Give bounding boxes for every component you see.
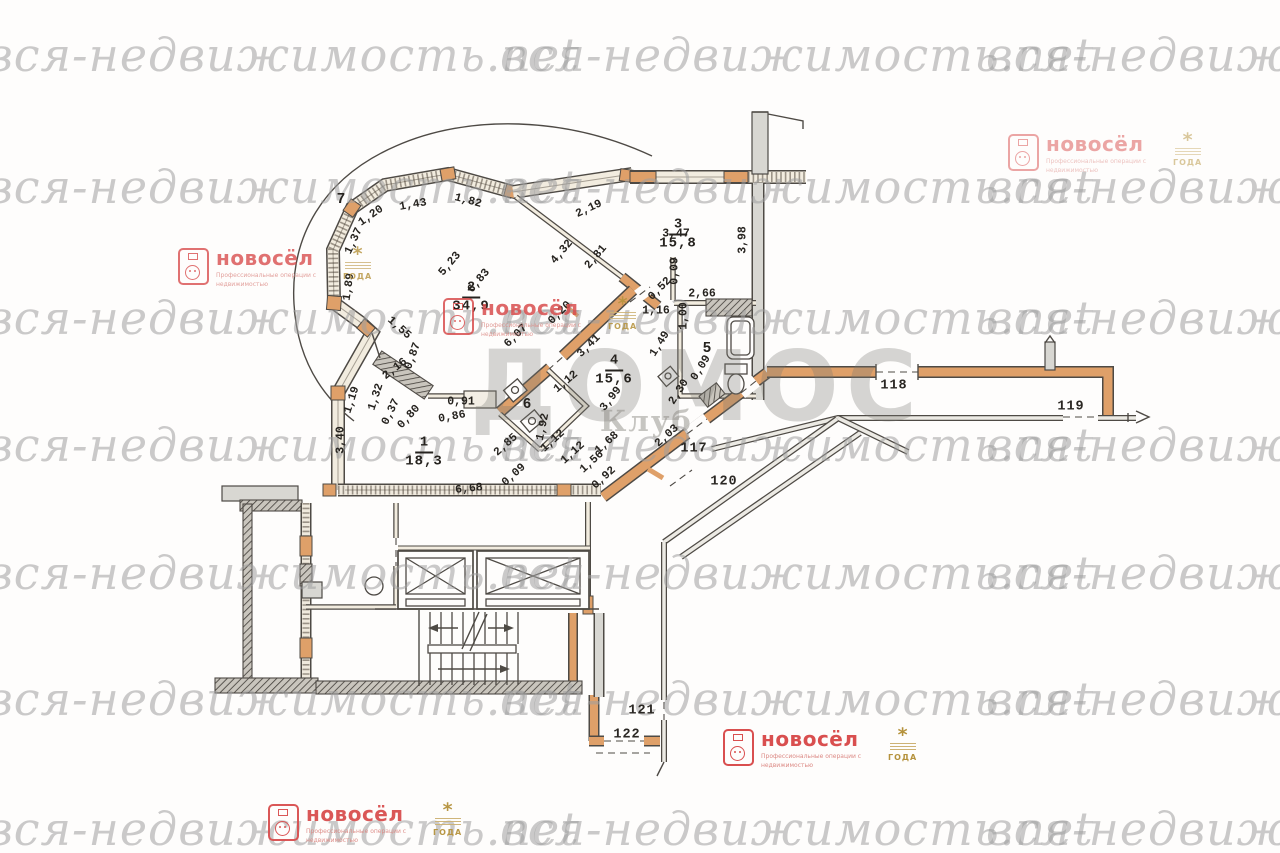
watermark-text: вся-недвижимость.net xyxy=(986,418,1280,472)
award-text: ГОДА xyxy=(1173,158,1202,167)
novosel-logo: новосёлПрофессиональные операции с недви… xyxy=(723,729,923,770)
award-star-icon: * xyxy=(618,298,628,310)
brand-subtitle: Профессиональные операции с недвижимость… xyxy=(306,827,426,845)
brand-subtitle: Профессиональные операции с недвижимость… xyxy=(481,321,601,339)
room-number: 7 xyxy=(337,192,346,208)
dimension-label: 2,81 xyxy=(582,242,610,272)
watermark-text: вся-недвижимость.net xyxy=(986,672,1280,726)
dimension-label: 1,16 xyxy=(642,305,670,318)
watermark-text: вся-недвижимость.net xyxy=(986,802,1280,853)
room-label-5: 5 xyxy=(703,339,712,357)
novosel-house-icon xyxy=(178,248,209,285)
award-text: ГОДА xyxy=(608,322,637,331)
room-label-6: 6 xyxy=(523,395,532,413)
room-area: 15,8 xyxy=(659,236,697,252)
brand-name: новосёл xyxy=(761,729,881,749)
dimension-label: 0,86 xyxy=(437,408,466,426)
watermark-text: вся-недвижимость.net xyxy=(986,28,1280,82)
award-star-icon: * xyxy=(443,804,453,816)
award-emblem: *ГОДА xyxy=(433,804,462,837)
floorplan-scan-page: вся-недвижимость.netвся-недвижимость.net… xyxy=(0,0,1280,853)
corridor-number-119: 119 xyxy=(1057,400,1084,415)
room-number: 5 xyxy=(703,341,712,357)
novosel-house-icon xyxy=(268,804,299,841)
novosel-logo: новосёлПрофессиональные операции с недви… xyxy=(443,298,643,339)
room-number: 1 xyxy=(415,436,433,454)
dimension-label: 1,82 xyxy=(453,191,483,211)
award-emblem: *ГОДА xyxy=(343,248,372,281)
dimension-label: 4,32 xyxy=(548,237,576,267)
award-text: ГОДА xyxy=(433,828,462,837)
room-label-1: 118,3 xyxy=(405,433,443,470)
corridor-number-118: 118 xyxy=(880,379,907,394)
brand-subtitle: Профессиональные операции с недвижимость… xyxy=(216,271,336,289)
award-emblem: *ГОДА xyxy=(888,729,917,762)
watermark-text: вся-недвижимость.net xyxy=(500,802,1094,853)
watermark-text: вся-недвижимость.net xyxy=(500,672,1094,726)
dimension-label: 0,09 xyxy=(499,461,528,489)
room-label-3: 315,8 xyxy=(659,215,697,252)
dimension-label: 5,23 xyxy=(436,249,464,279)
award-star-icon: * xyxy=(1183,134,1193,146)
watermark-text: вся-недвижимость.net xyxy=(500,28,1094,82)
room-label-7: 7 xyxy=(337,190,346,208)
watermark-text: вся-недвижимость.net xyxy=(986,546,1280,600)
novosel-house-icon xyxy=(1008,134,1039,171)
dimension-label: 2,66 xyxy=(688,288,716,301)
dimension-label: 1,00 xyxy=(678,302,691,330)
award-emblem: *ГОДА xyxy=(608,298,637,331)
novosel-house-icon xyxy=(443,298,474,335)
award-text: ГОДА xyxy=(343,272,372,281)
room-number: 3 xyxy=(669,218,687,236)
room-number: 2 xyxy=(462,281,480,299)
corridor-number-121: 121 xyxy=(628,704,655,719)
room-area: 18,3 xyxy=(405,454,443,470)
watermark-text: вся-недвижимость.net xyxy=(500,546,1094,600)
dimension-label: 0,91 xyxy=(447,396,475,409)
corridor-number-122: 122 xyxy=(613,728,640,743)
watermark-text: вся-недвижимость.net xyxy=(986,291,1280,345)
dimension-label: 1,43 xyxy=(398,196,427,214)
novosel-logo: новосёлПрофессиональные операции с недви… xyxy=(178,248,378,289)
room-number: 6 xyxy=(523,397,532,413)
brand-name: новосёл xyxy=(216,248,336,268)
watermark-text: вся-недвижимость.net xyxy=(0,28,580,82)
dimension-label: 2,19 xyxy=(574,197,605,220)
room-label-4: 415,6 xyxy=(595,351,633,388)
novosel-logo: новосёлПрофессиональные операции с недви… xyxy=(268,804,468,845)
award-star-icon: * xyxy=(353,248,363,260)
watermark-text: вся-недвижимость.net xyxy=(0,672,580,726)
novosel-house-icon xyxy=(723,729,754,766)
dimension-label: 1,55 xyxy=(384,314,413,342)
dimension-label: 3,40 xyxy=(335,426,348,454)
plan-labels-layer: вся-недвижимость.netвся-недвижимость.net… xyxy=(0,0,1280,853)
award-star-icon: * xyxy=(898,729,908,741)
room-number: 4 xyxy=(605,354,623,372)
brand-name: новосёл xyxy=(1046,134,1166,154)
dimension-label: 1,32 xyxy=(366,382,387,412)
dimension-label: 0,87 xyxy=(402,341,424,371)
brand-subtitle: Профессиональные операции с недвижимость… xyxy=(761,752,881,770)
brand-name: новосёл xyxy=(481,298,601,318)
dimension-label: 3,98 xyxy=(737,226,750,254)
watermark-text: вся-недвижимость.net xyxy=(0,546,580,600)
corridor-number-120: 120 xyxy=(710,475,737,490)
room-area: 15,6 xyxy=(595,372,633,388)
brand-name: новосёл xyxy=(306,804,426,824)
dimension-label: 0,52 xyxy=(646,275,675,304)
award-emblem: *ГОДА xyxy=(1173,134,1202,167)
corridor-number-117: 117 xyxy=(680,442,707,457)
dimension-label: 1,20 xyxy=(356,203,386,229)
novosel-logo: новосёлПрофессиональные операции с недви… xyxy=(1008,134,1208,175)
dimension-label: 6,68 xyxy=(455,481,484,497)
watermark-text: вся-недвижимость.net xyxy=(0,160,580,214)
brand-subtitle: Профессиональные операции с недвижимость… xyxy=(1046,157,1166,175)
award-text: ГОДА xyxy=(888,753,917,762)
dimension-label: 1,19 xyxy=(342,385,363,415)
